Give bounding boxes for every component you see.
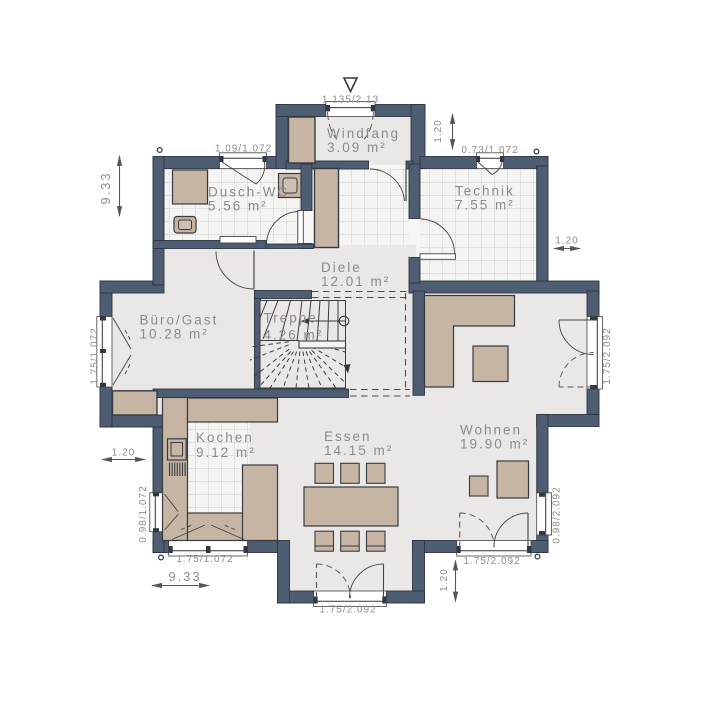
svg-text:0.73/1.072: 0.73/1.072 xyxy=(461,145,518,156)
svg-text:Diele: Diele xyxy=(321,260,362,275)
svg-text:19.90 m²: 19.90 m² xyxy=(460,437,529,452)
svg-text:0.98/2.092: 0.98/2.092 xyxy=(552,486,563,543)
svg-text:1.75/2.092: 1.75/2.092 xyxy=(319,605,376,616)
svg-text:1.09/1.072: 1.09/1.072 xyxy=(215,144,272,155)
svg-text:14.15 m²: 14.15 m² xyxy=(324,443,393,458)
svg-text:Treppe: Treppe xyxy=(264,311,318,326)
svg-text:Büro/Gast: Büro/Gast xyxy=(140,313,219,328)
svg-text:5.56 m²: 5.56 m² xyxy=(208,199,268,214)
svg-text:9.33: 9.33 xyxy=(98,171,113,204)
svg-text:Essen: Essen xyxy=(324,429,372,444)
svg-text:10.28 m²: 10.28 m² xyxy=(140,327,209,342)
svg-text:Kochen: Kochen xyxy=(196,430,254,445)
svg-text:1.75/2.092: 1.75/2.092 xyxy=(463,556,520,567)
svg-text:9.12 m²: 9.12 m² xyxy=(196,445,256,460)
svg-text:3.09 m²: 3.09 m² xyxy=(327,140,387,155)
svg-text:1.75/1.072: 1.75/1.072 xyxy=(90,327,101,384)
svg-text:1.75/1.072: 1.75/1.072 xyxy=(176,554,233,565)
svg-text:1.20: 1.20 xyxy=(112,448,135,459)
svg-text:1.75/2.092: 1.75/2.092 xyxy=(602,327,613,384)
svg-text:Technik: Technik xyxy=(455,184,515,199)
svg-text:12.01 m²: 12.01 m² xyxy=(321,274,390,289)
svg-text:Dusch-WC: Dusch-WC xyxy=(208,185,289,200)
svg-text:1.20: 1.20 xyxy=(555,236,578,247)
svg-text:7.55 m²: 7.55 m² xyxy=(455,198,515,213)
svg-text:1.20: 1.20 xyxy=(439,568,450,591)
svg-text:9.33: 9.33 xyxy=(168,569,201,584)
svg-text:Wohnen: Wohnen xyxy=(460,423,522,438)
svg-text:4.26 m²: 4.26 m² xyxy=(264,328,324,343)
svg-text:1.135/2.13: 1.135/2.13 xyxy=(322,95,379,106)
svg-text:0.98/1.072: 0.98/1.072 xyxy=(138,485,149,542)
svg-text:Windfang: Windfang xyxy=(327,126,400,141)
svg-text:1.20: 1.20 xyxy=(433,119,444,142)
